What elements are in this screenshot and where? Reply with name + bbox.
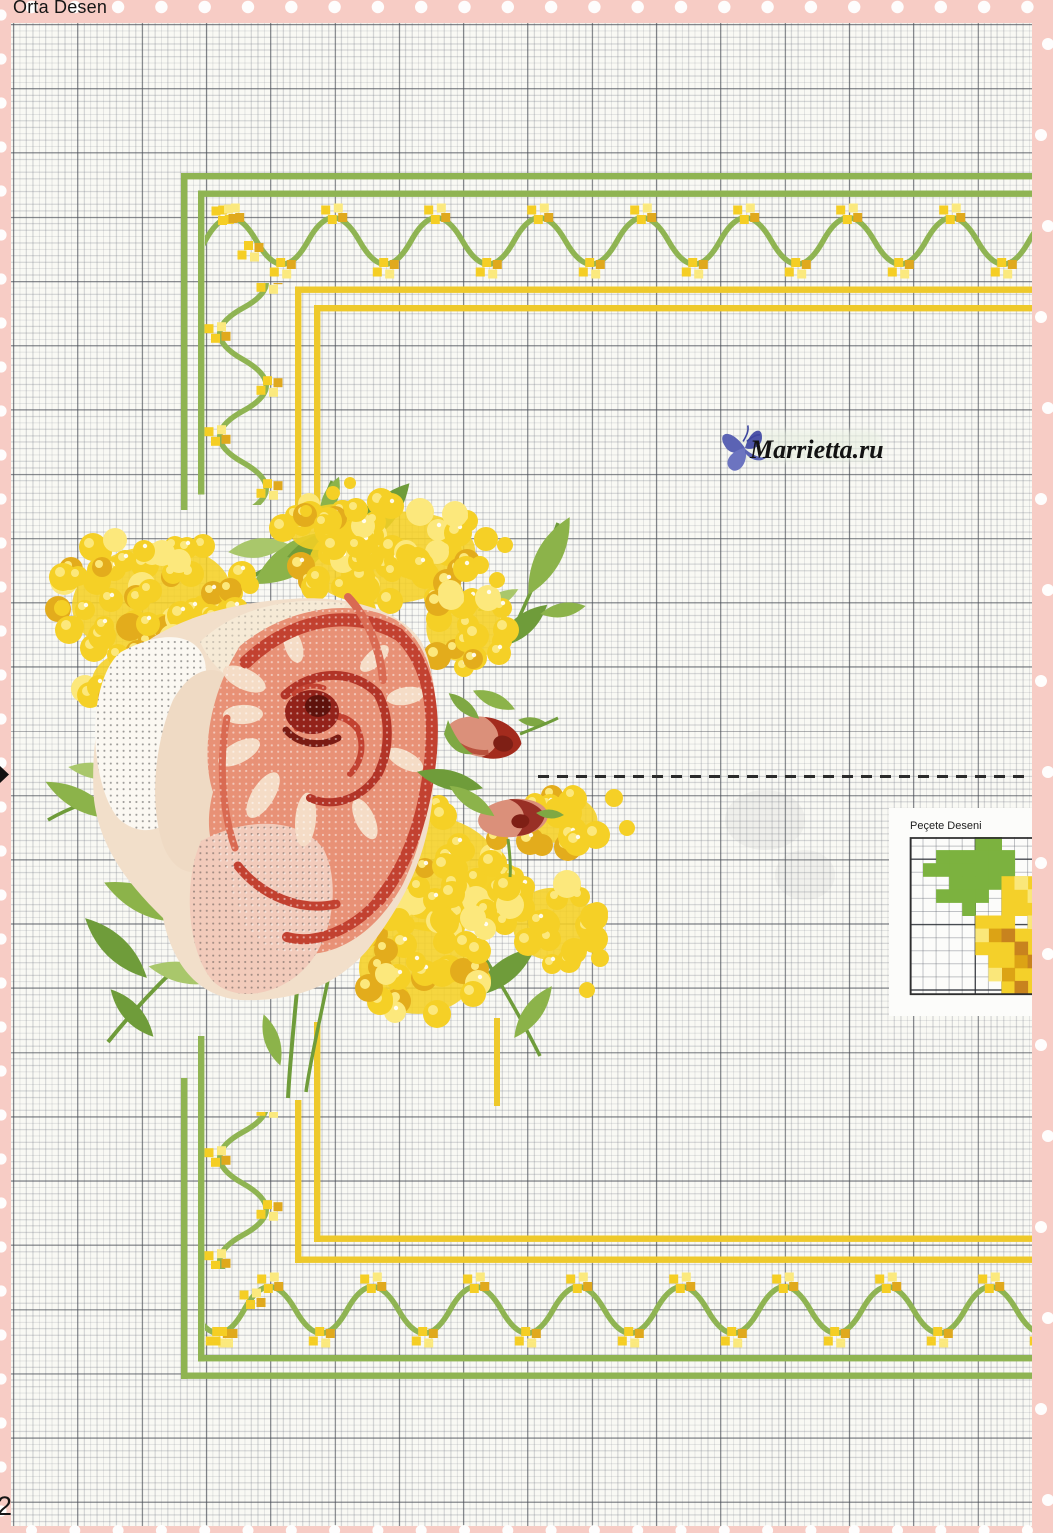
svg-text:Marrietta.ru: Marrietta.ru	[749, 435, 884, 464]
svg-text:Peçete Deseni: Peçete Deseni	[910, 820, 982, 832]
